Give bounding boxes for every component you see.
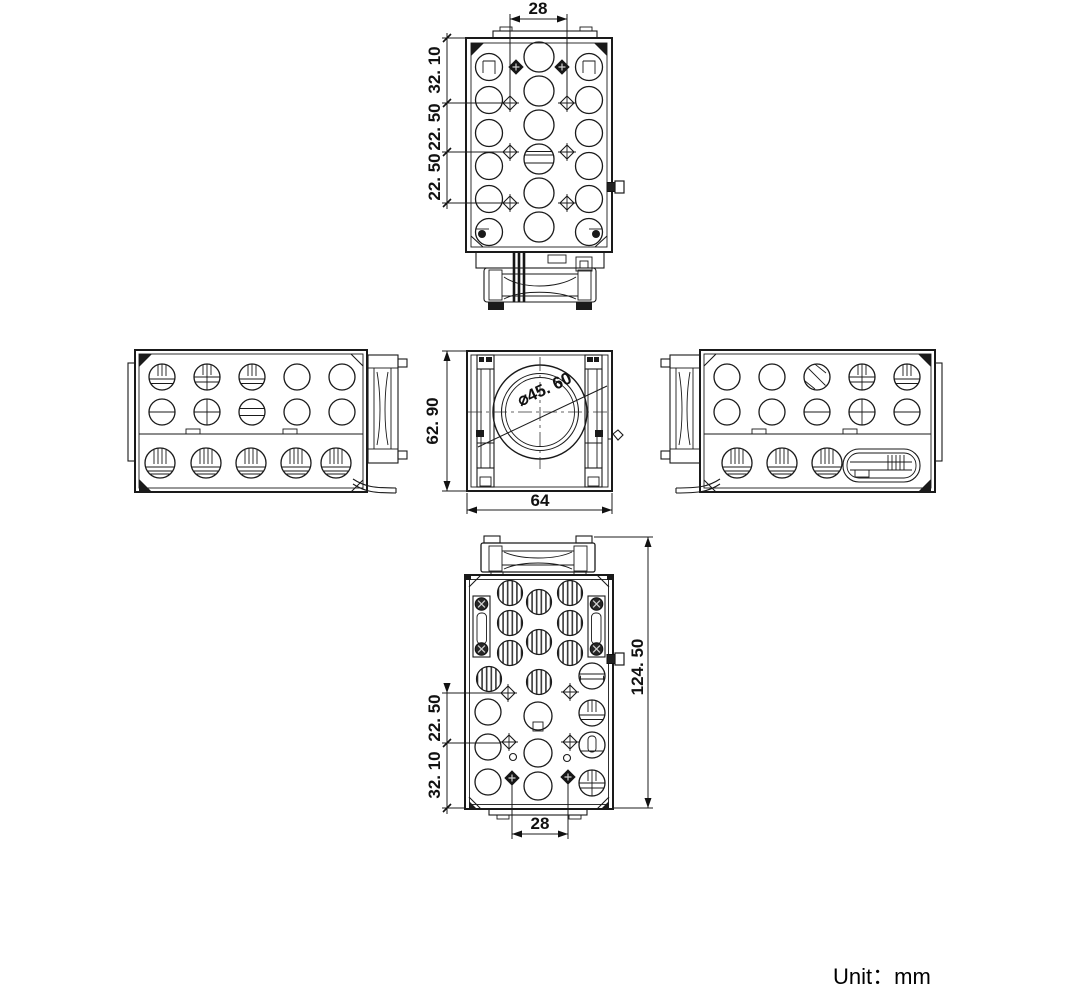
bottom-view-screw-holes xyxy=(499,683,579,785)
right-view-vent-holes xyxy=(722,448,842,478)
cable-hook xyxy=(353,479,396,493)
dim-label-front-width: 64 xyxy=(531,491,550,510)
front-bezel-lip xyxy=(128,363,135,461)
bottom-view-mount-bracket xyxy=(481,536,595,575)
connector-slot xyxy=(843,449,920,482)
right-view-holes xyxy=(714,364,920,425)
cable-hook xyxy=(676,479,720,493)
top-view-mount-bracket xyxy=(476,252,604,310)
top-view-holes xyxy=(476,42,603,246)
bracket-foot xyxy=(576,536,592,543)
side-knob xyxy=(608,430,623,440)
top-view-body xyxy=(466,27,624,252)
dim-label-top-screw-span: 28 xyxy=(529,0,548,18)
bottom-view: 124. 50 22. 50 32. 10 28 xyxy=(425,536,653,839)
corner-chamfer xyxy=(471,43,484,56)
top-view: 28 32. 10 22. 50 22. 50 xyxy=(425,0,624,310)
right-side-view xyxy=(661,350,942,493)
front-view-dimensions: 62. 90 64 xyxy=(423,351,612,514)
dim-label-bottom-seg2: 32. 10 xyxy=(425,751,444,798)
dim-label-top-seg3: 22. 50 xyxy=(425,153,444,200)
dim-label-bottom-screw-span: 28 xyxy=(531,814,550,833)
unit-note: Unit：mm xyxy=(833,964,931,989)
dim-label-lens-diameter: ⌀45. 60 xyxy=(514,368,574,410)
left-side-view xyxy=(128,350,407,493)
top-lip xyxy=(493,31,597,38)
bottom-view-vent-grilles xyxy=(477,581,583,695)
side-connector-knob xyxy=(607,181,624,193)
dim-label-top-seg1: 32. 10 xyxy=(425,46,444,93)
bracket-foot xyxy=(576,302,592,310)
dim-label-top-seg2: 22. 50 xyxy=(425,103,444,150)
dim-label-front-height: 62. 90 xyxy=(423,397,442,444)
bottom-left-rail xyxy=(473,596,490,657)
top-view-screw-holes xyxy=(501,60,576,212)
right-view-bracket xyxy=(661,355,720,493)
dim-label-bottom-seg1: 22. 50 xyxy=(425,694,444,741)
drawing-page: 28 32. 10 22. 50 22. 50 xyxy=(0,0,1078,1000)
front-right-rail xyxy=(585,355,603,487)
dim-label-bottom-total: 124. 50 xyxy=(628,639,647,696)
bottom-right-rail xyxy=(588,596,605,657)
left-view-vent-holes xyxy=(145,448,351,478)
left-view-bracket xyxy=(353,355,407,493)
bracket-foot xyxy=(484,536,500,543)
orthographic-views-drawing: 28 32. 10 22. 50 22. 50 xyxy=(0,0,1078,1000)
side-connector-knob xyxy=(607,653,624,665)
front-bezel-lip xyxy=(935,363,942,461)
front-left-rail xyxy=(476,355,494,487)
front-view: ⌀45. 60 62. 90 64 xyxy=(423,351,623,514)
corner-chamfer xyxy=(594,43,607,56)
left-view-holes xyxy=(149,364,355,425)
bracket-foot xyxy=(488,302,504,310)
